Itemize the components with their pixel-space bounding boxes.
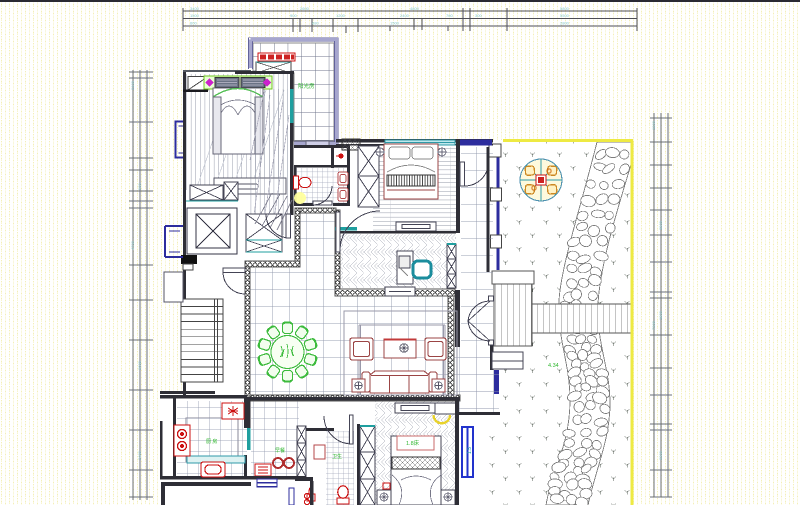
svg-text:2800: 2800 [560,21,570,26]
svg-text:5800: 5800 [560,6,570,11]
svg-text:2400: 2400 [137,450,142,460]
svg-text:2100: 2100 [130,80,135,90]
svg-text:300: 300 [475,13,482,18]
svg-text:4800: 4800 [410,6,420,11]
svg-text:3300: 3300 [658,450,663,460]
svg-text:7200: 7200 [651,320,656,330]
svg-text:760: 760 [446,13,453,18]
svg-text:厨 房: 厨 房 [206,438,217,445]
svg-text:600: 600 [190,21,197,26]
svg-text:1.5: 1.5 [467,447,473,454]
svg-text:900: 900 [137,183,142,190]
svg-text:3600: 3600 [137,360,142,370]
svg-text:2400: 2400 [400,13,410,18]
svg-text:卫生: 卫生 [332,453,342,460]
svg-text:1800: 1800 [658,310,663,320]
svg-text:3900: 3900 [658,220,663,230]
svg-text:4.34: 4.34 [548,363,559,369]
svg-text:阳光房: 阳光房 [298,82,315,90]
svg-text:1500: 1500 [190,13,200,18]
svg-text:4700: 4700 [130,240,135,250]
svg-text:1200: 1200 [336,13,346,18]
svg-text:1.8床: 1.8床 [406,439,420,447]
svg-text:680: 680 [312,21,319,26]
svg-text:900: 900 [290,13,297,18]
svg-text:早餐: 早餐 [275,447,285,454]
svg-text:3400: 3400 [190,6,200,11]
svg-text:1200: 1200 [651,120,656,130]
svg-text:1500: 1500 [390,21,400,26]
svg-text:5500: 5500 [560,13,570,18]
svg-text:2600: 2600 [300,6,310,11]
